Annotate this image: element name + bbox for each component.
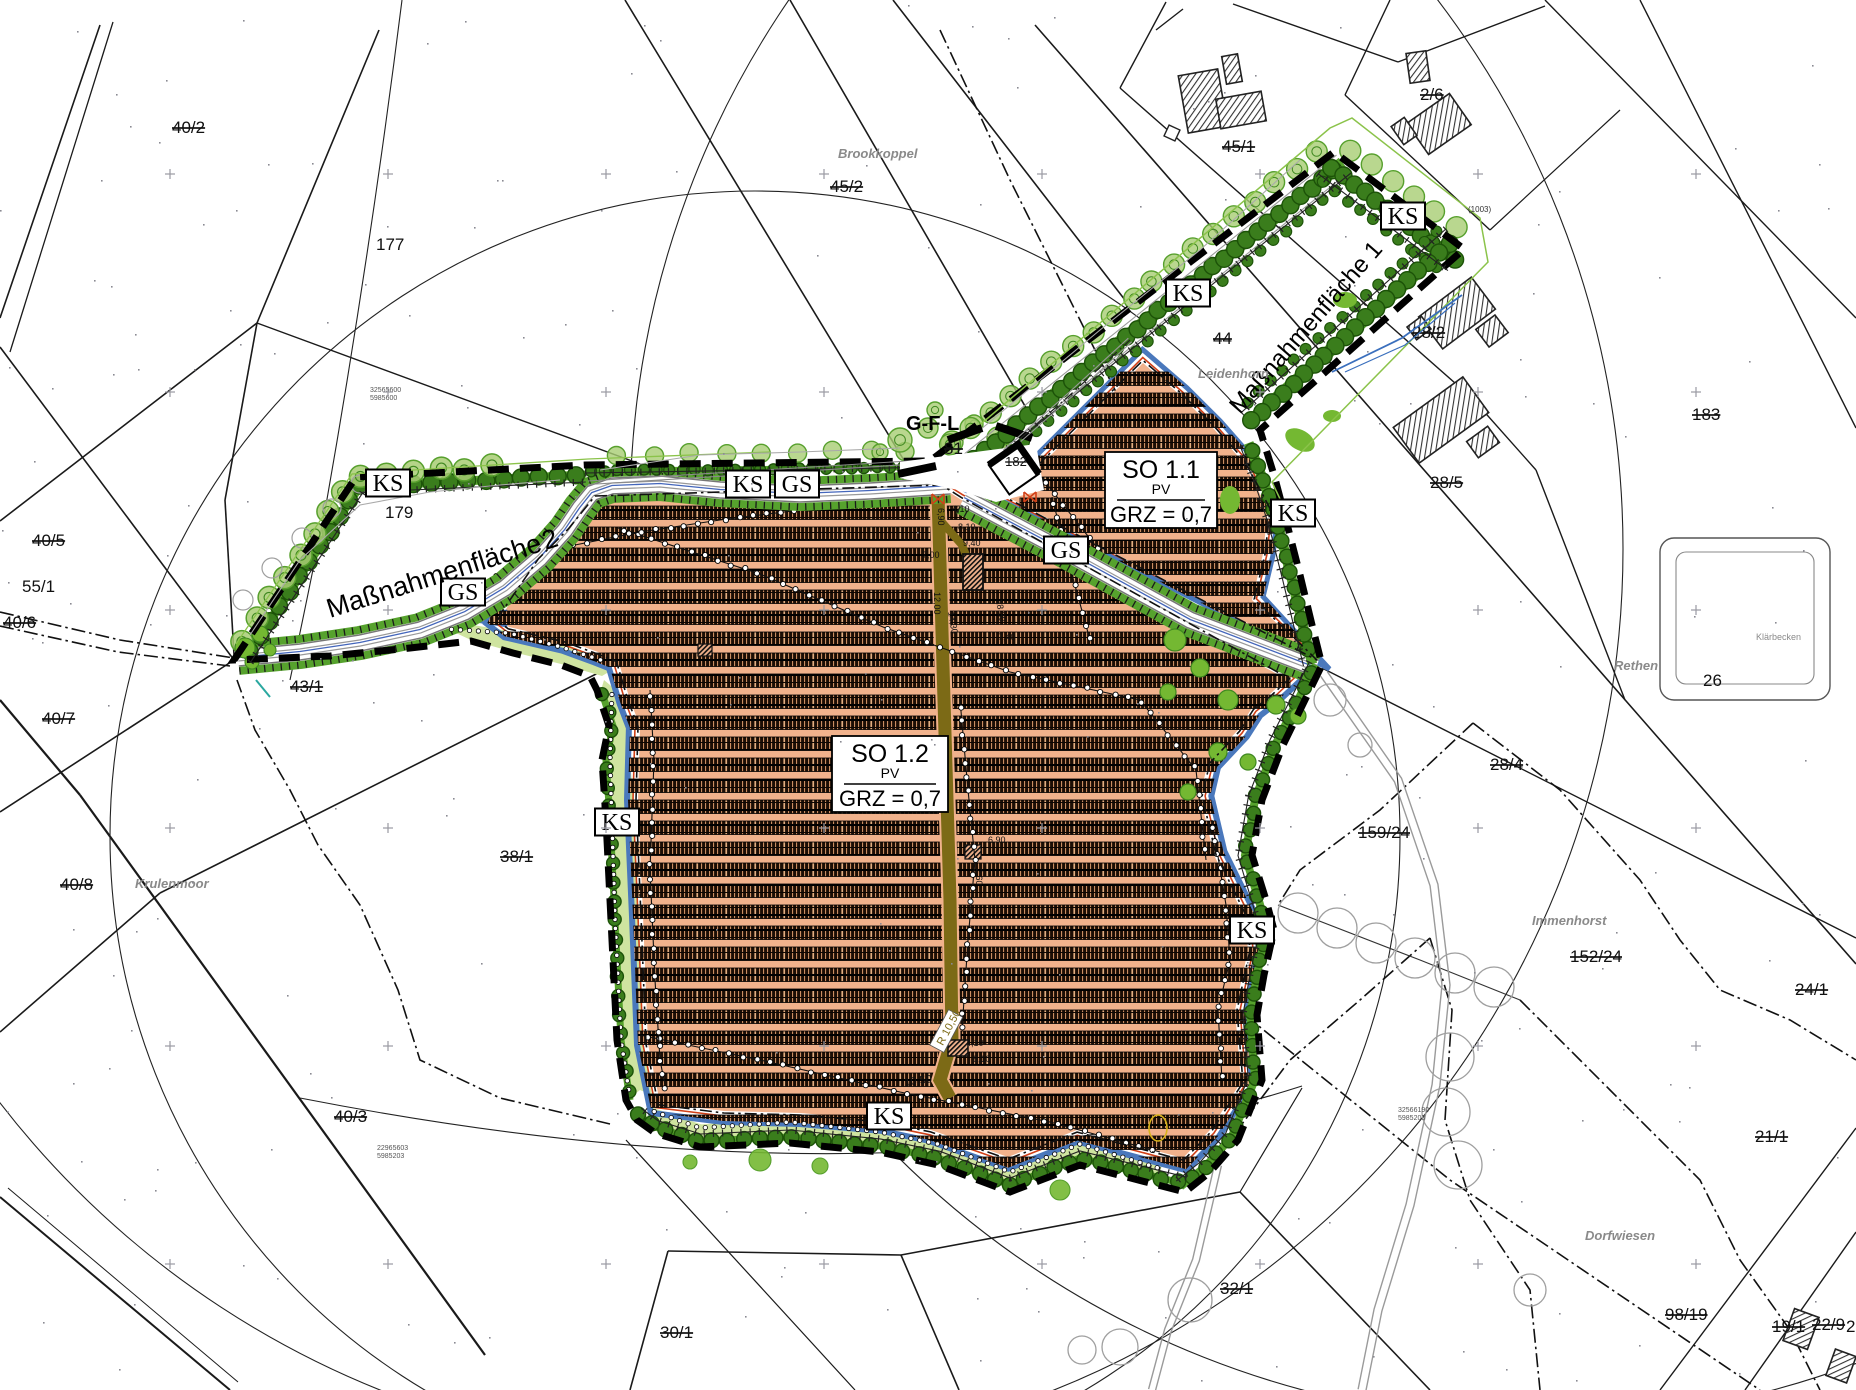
svg-text:Krulenmoor: Krulenmoor: [135, 876, 210, 891]
svg-text:9,40: 9,40: [963, 538, 981, 548]
svg-text:152/24: 152/24: [1570, 947, 1622, 966]
svg-text:Immenhorst: Immenhorst: [1532, 913, 1607, 928]
svg-text:Brookkoppel: Brookkoppel: [838, 146, 918, 161]
svg-text:6,90: 6,90: [936, 508, 946, 526]
svg-text:5985600: 5985600: [370, 395, 397, 402]
svg-text:8,10: 8,10: [958, 522, 976, 532]
svg-text:44: 44: [1213, 329, 1232, 348]
svg-text:24/1: 24/1: [1795, 980, 1828, 999]
svg-text:SO 1.2: SO 1.2: [851, 740, 929, 768]
svg-text:Dorfwiesen: Dorfwiesen: [1585, 1228, 1655, 1243]
svg-text:SO 1.1: SO 1.1: [1122, 456, 1200, 484]
svg-text:177: 177: [376, 235, 404, 254]
svg-text:2/6: 2/6: [1420, 85, 1444, 104]
svg-text:28/4: 28/4: [1490, 755, 1523, 774]
svg-text:5985203: 5985203: [1398, 1115, 1425, 1122]
svg-text:KS: KS: [1237, 918, 1268, 944]
svg-text:183: 183: [1692, 405, 1720, 424]
svg-text:7,40: 7,40: [998, 632, 1016, 642]
svg-text:12,00: 12,00: [932, 592, 942, 615]
svg-text:43/1: 43/1: [290, 677, 323, 696]
svg-text:81: 81: [944, 439, 963, 458]
svg-text:182: 182: [1005, 454, 1027, 469]
svg-text:40/8: 40/8: [60, 875, 93, 894]
svg-text:KS: KS: [733, 472, 764, 498]
svg-text:4,10: 4,10: [952, 504, 970, 514]
svg-text:22: 22: [1846, 1317, 1856, 1336]
svg-text:8,10: 8,10: [973, 1054, 991, 1064]
svg-text:KS: KS: [1278, 501, 1309, 527]
svg-text:7,00: 7,00: [922, 550, 940, 560]
svg-text:21/1: 21/1: [1755, 1127, 1788, 1146]
svg-text:179: 179: [385, 503, 413, 522]
svg-text:32/1: 32/1: [1220, 1279, 1253, 1298]
svg-text:22965603: 22965603: [377, 1145, 408, 1152]
svg-text:159/24: 159/24: [1358, 823, 1410, 842]
svg-text:Rethen: Rethen: [1614, 658, 1658, 673]
svg-text:6,90: 6,90: [988, 835, 1006, 845]
svg-text:KS: KS: [373, 471, 404, 497]
svg-text:32566190: 32566190: [1398, 1107, 1429, 1114]
svg-text:GRZ = 0,7: GRZ = 0,7: [839, 786, 941, 811]
svg-text:GRZ = 0,7: GRZ = 0,7: [1110, 502, 1212, 527]
svg-text:22/9: 22/9: [1812, 1315, 1845, 1334]
svg-text:Klärbecken: Klärbecken: [1756, 632, 1801, 642]
svg-text:PV: PV: [1152, 481, 1171, 497]
svg-text:2,60: 2,60: [974, 868, 984, 886]
svg-text:Leidenhorn: Leidenhorn: [1198, 366, 1269, 381]
svg-text:40/6: 40/6: [3, 613, 36, 632]
svg-text:KS: KS: [874, 1104, 905, 1130]
svg-text:(1003): (1003): [1468, 205, 1491, 214]
svg-text:PV: PV: [881, 765, 900, 781]
svg-text:KS: KS: [1173, 281, 1204, 307]
svg-text:32565600: 32565600: [370, 387, 401, 394]
svg-text:55/1: 55/1: [22, 577, 55, 596]
svg-text:28/5: 28/5: [1430, 473, 1463, 492]
svg-text:38/1: 38/1: [500, 847, 533, 866]
svg-text:26: 26: [1703, 671, 1722, 690]
svg-text:45/2: 45/2: [830, 177, 863, 196]
svg-text:98/19: 98/19: [1665, 1305, 1708, 1324]
svg-text:45/1: 45/1: [1222, 137, 1255, 156]
svg-text:40/3: 40/3: [334, 1107, 367, 1126]
svg-text:GS: GS: [782, 472, 813, 498]
svg-text:G-F-L: G-F-L: [906, 413, 959, 435]
svg-text:4,10: 4,10: [966, 1038, 984, 1048]
svg-text:40/7: 40/7: [42, 709, 75, 728]
svg-text:5985203: 5985203: [377, 1153, 404, 1160]
svg-text:19/1: 19/1: [1772, 1317, 1805, 1336]
svg-text:40/2: 40/2: [172, 118, 205, 137]
svg-text:GS: GS: [1051, 538, 1082, 564]
svg-text:30/1: 30/1: [660, 1323, 693, 1342]
svg-text:KS: KS: [1388, 204, 1419, 230]
svg-text:40/5: 40/5: [32, 531, 65, 550]
